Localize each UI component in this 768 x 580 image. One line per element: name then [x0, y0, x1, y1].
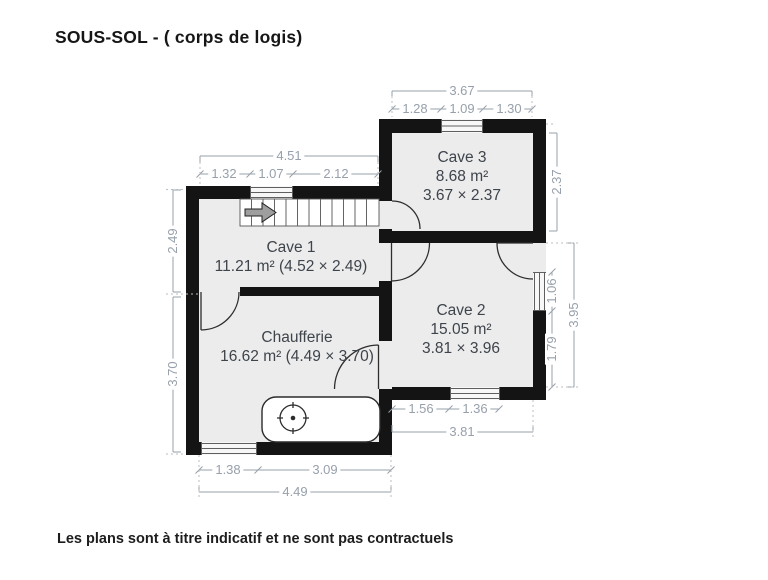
dim-cave1-top-seg2: 1.07: [255, 167, 286, 181]
room-details: 16.62 m² (4.49 × 3.70): [220, 347, 374, 366]
room-name: Cave 2: [422, 301, 500, 320]
dim-right-cave3-height: 2.37: [550, 166, 564, 197]
dim-chaufferie-bottom-overall: 4.49: [279, 485, 310, 499]
room-details: 11.21 m² (4.52 × 2.49): [215, 257, 368, 276]
dim-cave3-top-overall: 3.67: [446, 84, 477, 98]
room-size: 3.67 × 2.37: [423, 186, 501, 205]
room-size: 3.81 × 3.96: [422, 339, 500, 358]
dim-cave2-bottom-seg1: 1.56: [405, 402, 436, 416]
room-label-cave1: Cave 1 11.21 m² (4.52 × 2.49): [215, 238, 368, 276]
staircase: [240, 199, 379, 226]
dim-cave2-bottom-overall: 3.81: [446, 425, 477, 439]
dim-chaufferie-bottom-seg2: 3.09: [309, 463, 340, 477]
dim-cave3-top-seg3: 1.30: [493, 102, 524, 116]
dim-cave2-bottom-seg2: 1.36: [459, 402, 490, 416]
floorplan-page: SOUS-SOL - ( corps de logis): [0, 0, 768, 580]
room-name: Cave 3: [423, 148, 501, 167]
dim-right-overall: 3.95: [567, 299, 581, 330]
room-name: Chaufferie: [220, 328, 374, 347]
floorplan-drawing: [0, 0, 768, 580]
dim-right-window: 1.06: [545, 275, 559, 306]
dim-right-wall: 1.79: [545, 333, 559, 364]
dim-cave3-top-seg2: 1.09: [446, 102, 477, 116]
room-area: 8.68 m²: [423, 167, 501, 186]
dim-left-cave1-height: 2.49: [166, 225, 180, 256]
tank: [262, 397, 380, 442]
dim-left-chaufferie-height: 3.70: [166, 358, 180, 389]
dim-cave1-top-seg3: 2.12: [320, 167, 351, 181]
room-label-cave3: Cave 3 8.68 m² 3.67 × 2.37: [423, 148, 501, 205]
disclaimer: Les plans sont à titre indicatif et ne s…: [57, 531, 453, 547]
dim-cave1-top-seg1: 1.32: [208, 167, 239, 181]
room-name: Cave 1: [215, 238, 368, 257]
dim-chaufferie-bottom-seg1: 1.38: [212, 463, 243, 477]
room-area: 15.05 m²: [422, 320, 500, 339]
dim-cave1-top-overall: 4.51: [273, 149, 304, 163]
room-label-chaufferie: Chaufferie 16.62 m² (4.49 × 3.70): [220, 328, 374, 366]
room-label-cave2: Cave 2 15.05 m² 3.81 × 3.96: [422, 301, 500, 358]
dim-cave3-top-seg1: 1.28: [399, 102, 430, 116]
